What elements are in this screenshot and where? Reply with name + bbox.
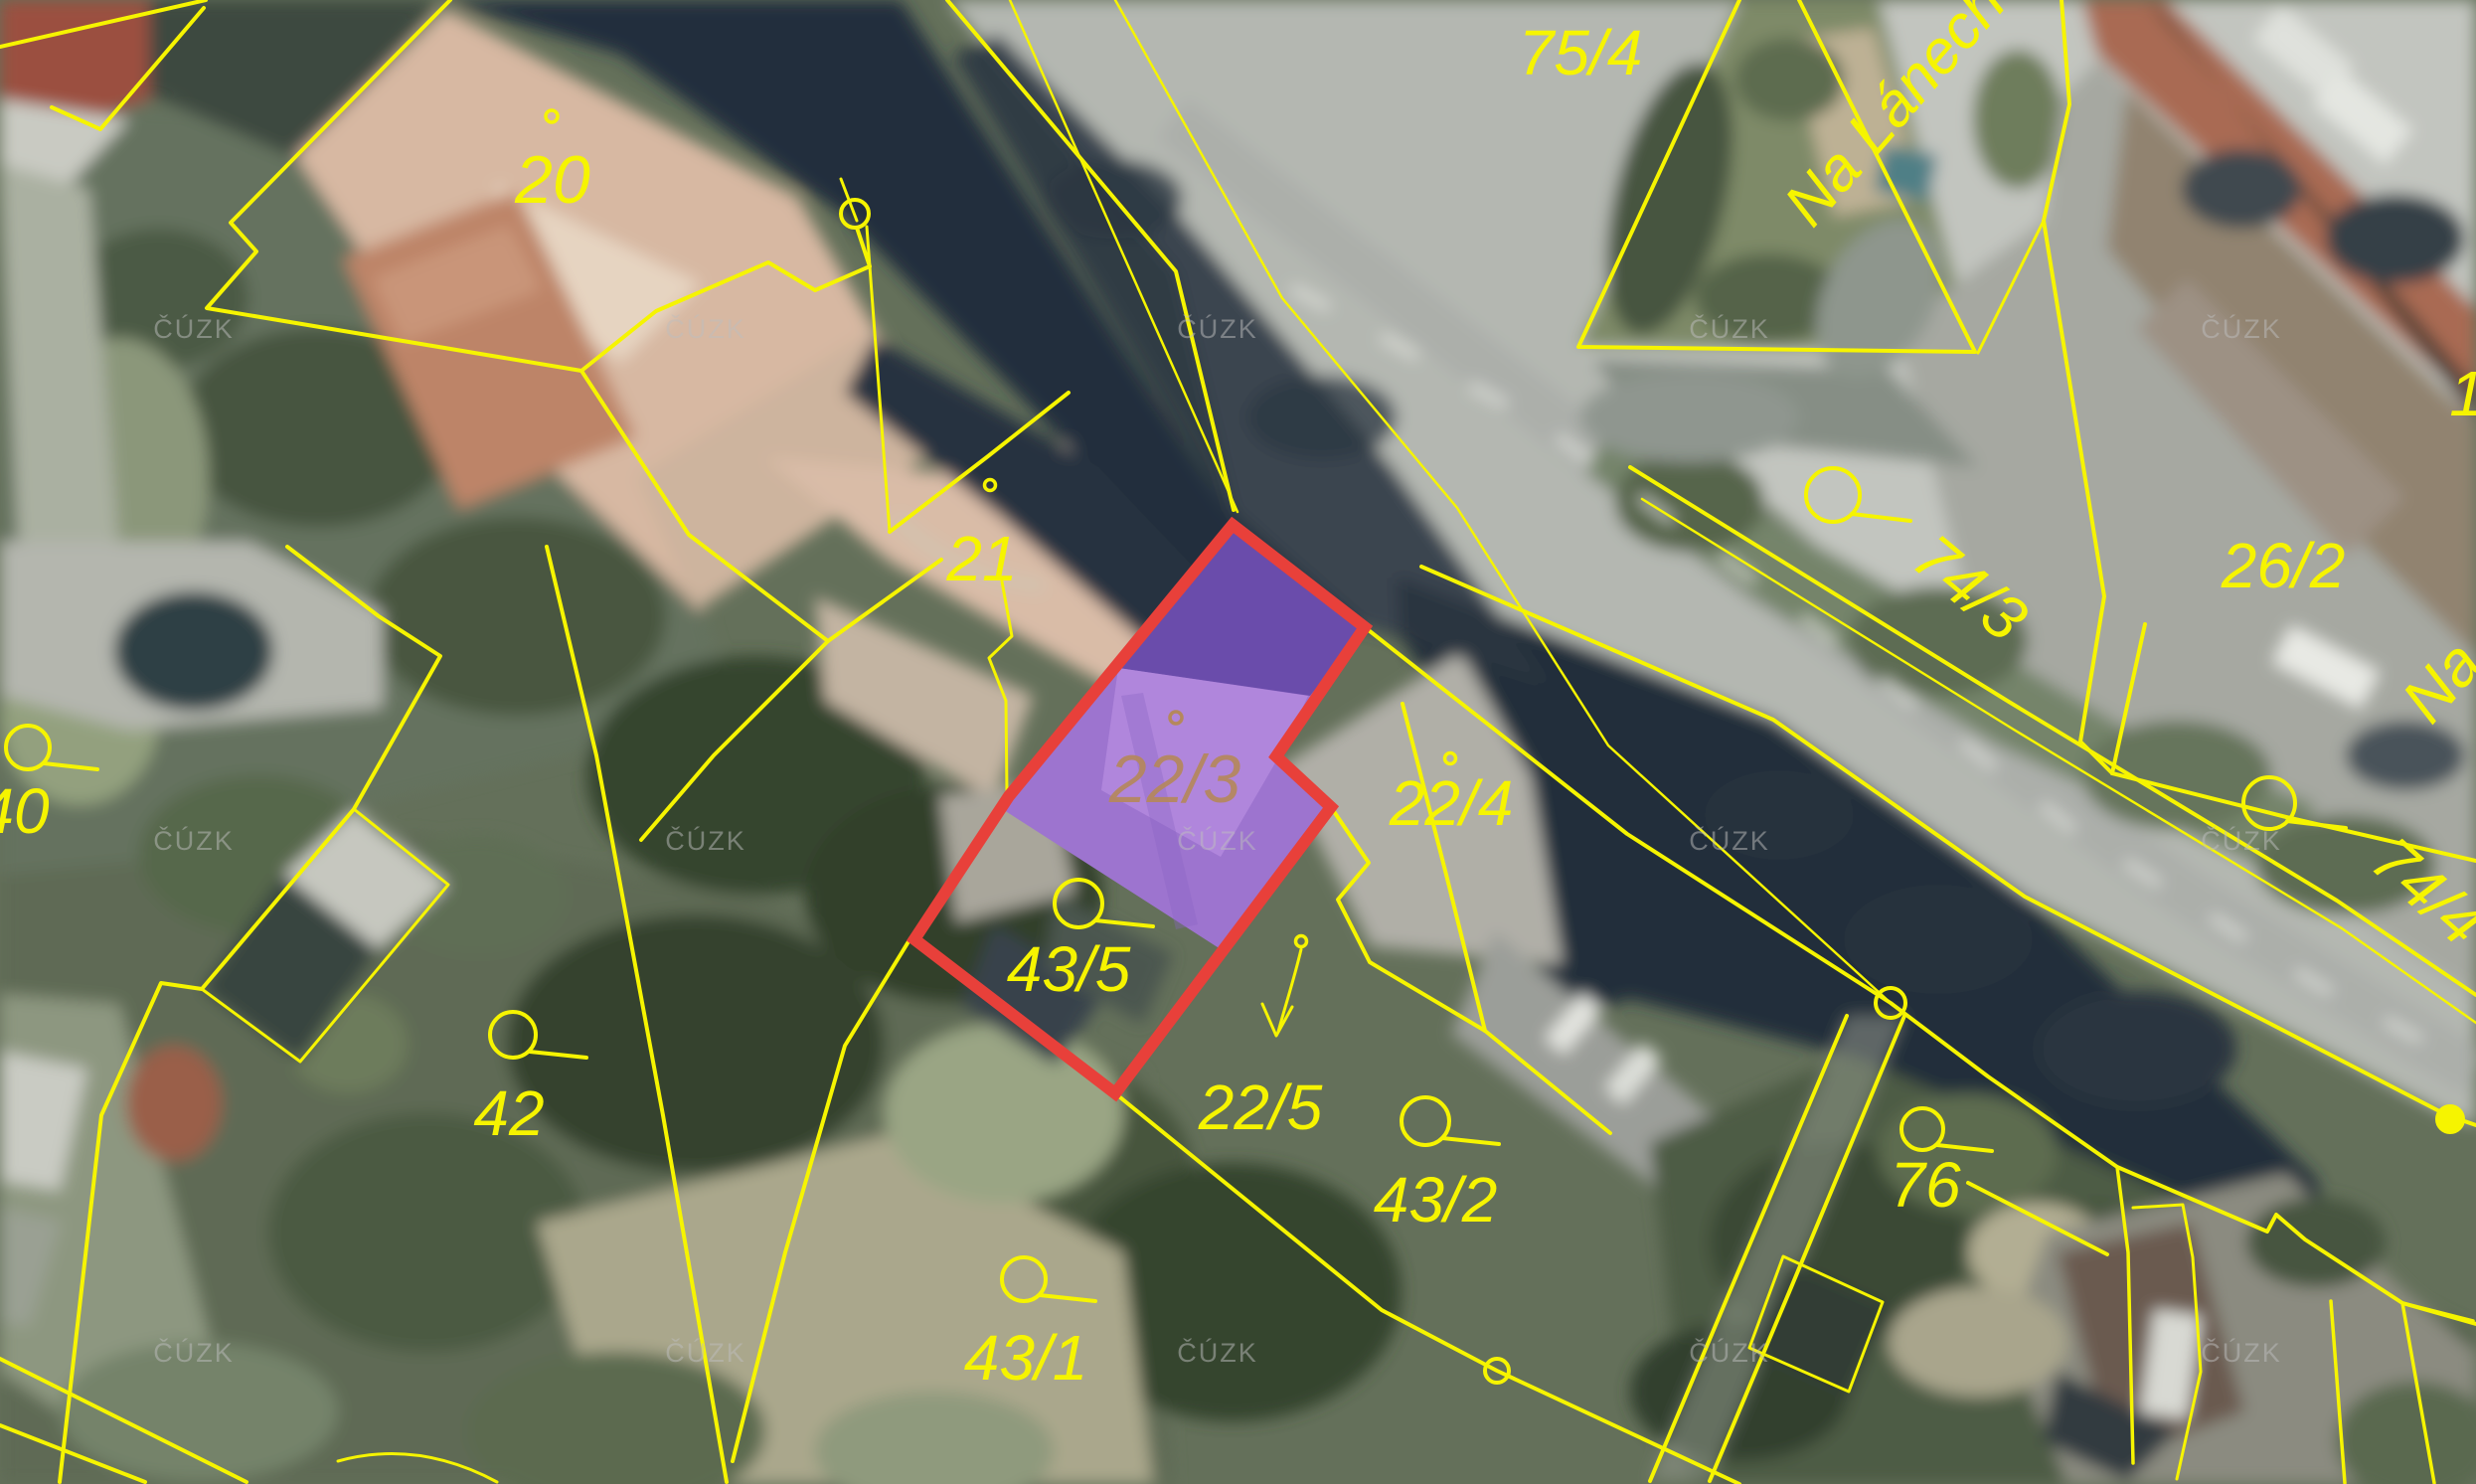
svg-text:ČÚZK: ČÚZK <box>1689 313 1770 344</box>
svg-text:ČÚZK: ČÚZK <box>1689 825 1770 856</box>
svg-text:76: 76 <box>1890 1149 1961 1221</box>
svg-text:43/2: 43/2 <box>1374 1164 1498 1236</box>
svg-text:ČÚZK: ČÚZK <box>2201 313 2282 344</box>
svg-text:ČÚZK: ČÚZK <box>153 1337 235 1368</box>
svg-text:ČÚZK: ČÚZK <box>665 313 746 344</box>
svg-text:ČÚZK: ČÚZK <box>1689 1337 1770 1368</box>
svg-text:22/4: 22/4 <box>1389 767 1514 839</box>
svg-text:ČÚZK: ČÚZK <box>665 825 746 856</box>
svg-text:75/4: 75/4 <box>1519 17 1643 88</box>
svg-text:ČÚZK: ČÚZK <box>1177 825 1258 856</box>
svg-text:43/5: 43/5 <box>1007 933 1131 1005</box>
svg-text:ČÚZK: ČÚZK <box>153 313 235 344</box>
svg-text:22/3: 22/3 <box>1108 742 1241 817</box>
svg-text:26/2: 26/2 <box>2221 530 2346 601</box>
svg-text:ČÚZK: ČÚZK <box>665 1337 746 1368</box>
svg-text:1: 1 <box>2449 358 2476 429</box>
svg-text:ČÚZK: ČÚZK <box>153 825 235 856</box>
svg-text:ČÚZK: ČÚZK <box>1177 1337 1258 1368</box>
svg-text:20: 20 <box>514 142 590 218</box>
svg-text:22/5: 22/5 <box>1198 1072 1323 1143</box>
svg-text:ČÚZK: ČÚZK <box>2201 1337 2282 1368</box>
svg-text:ČÚZK: ČÚZK <box>2201 825 2282 856</box>
svg-text:ČÚZK: ČÚZK <box>1177 313 1258 344</box>
svg-text:42: 42 <box>473 1077 544 1149</box>
svg-text:43/1: 43/1 <box>964 1322 1088 1394</box>
svg-text:21: 21 <box>945 523 1017 594</box>
svg-text:40: 40 <box>0 775 50 847</box>
